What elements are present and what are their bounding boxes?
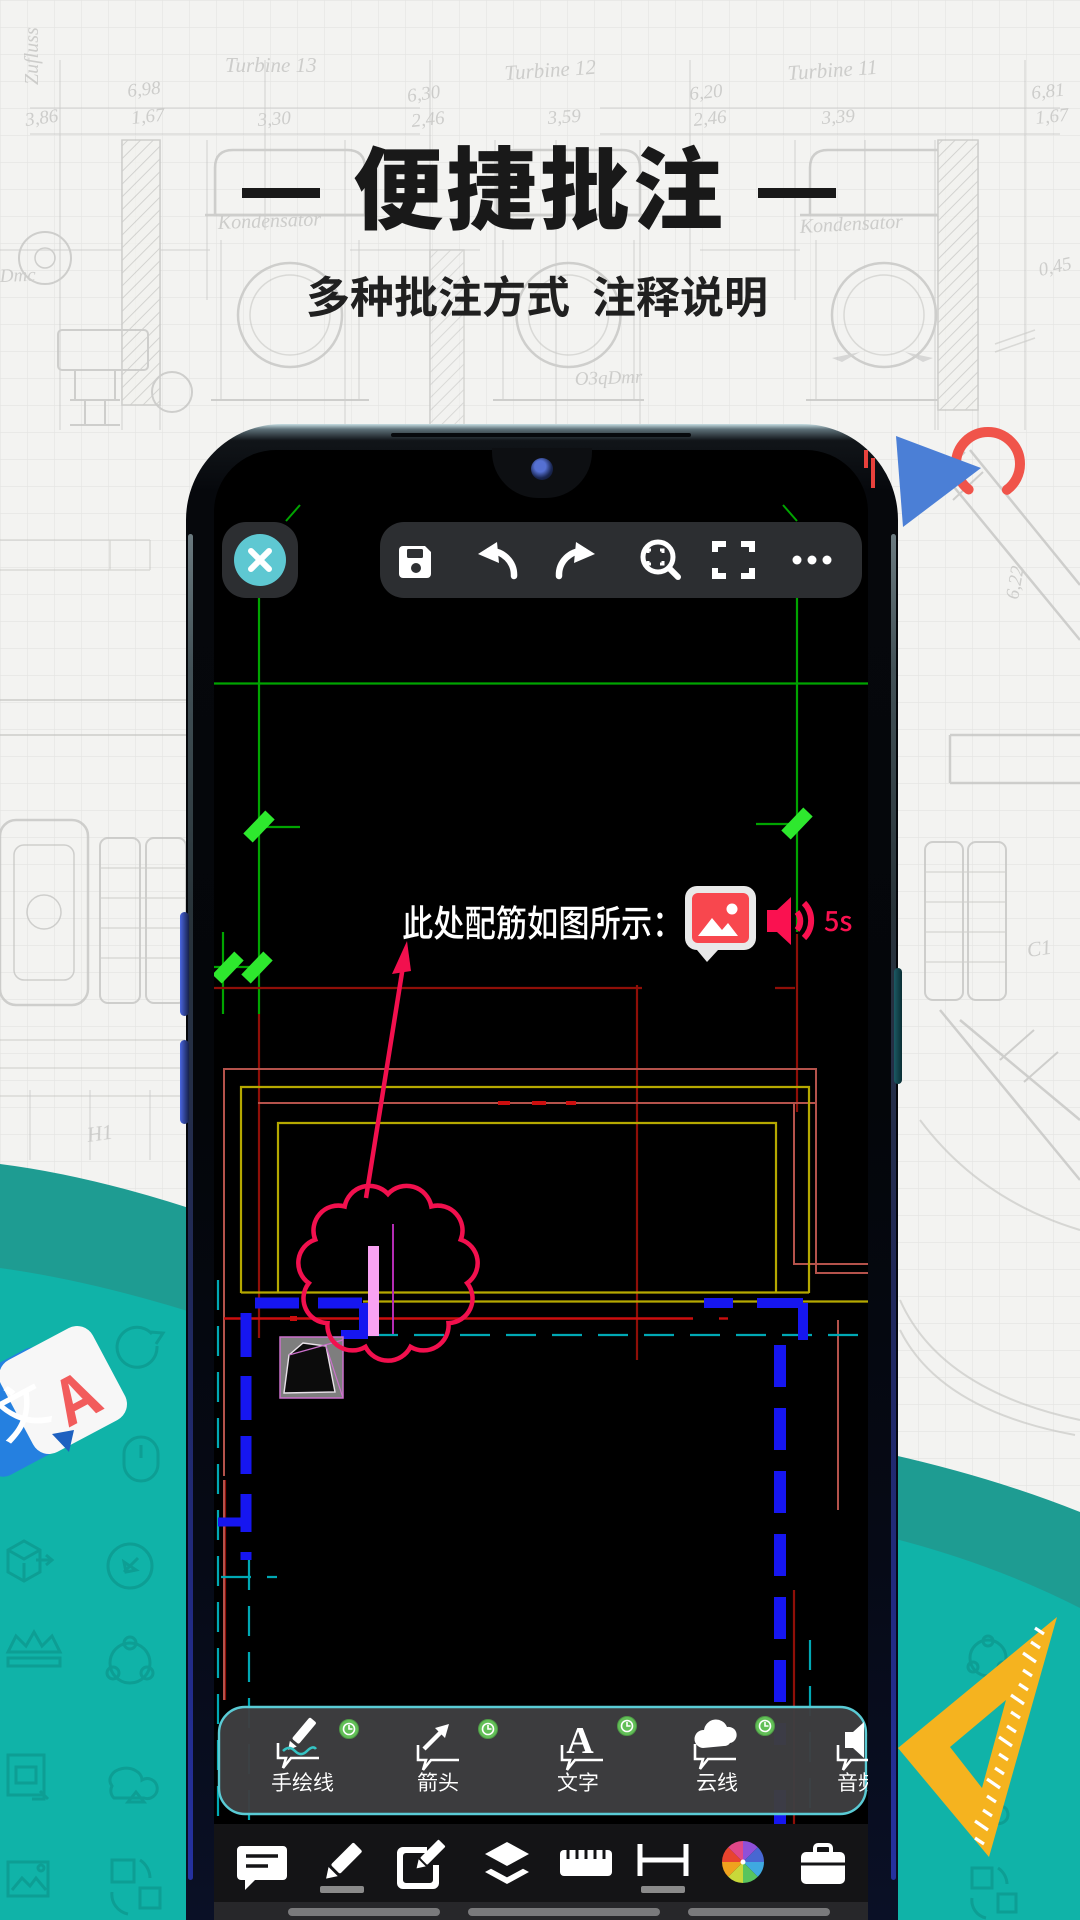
svg-text:A: A: [566, 1720, 594, 1762]
